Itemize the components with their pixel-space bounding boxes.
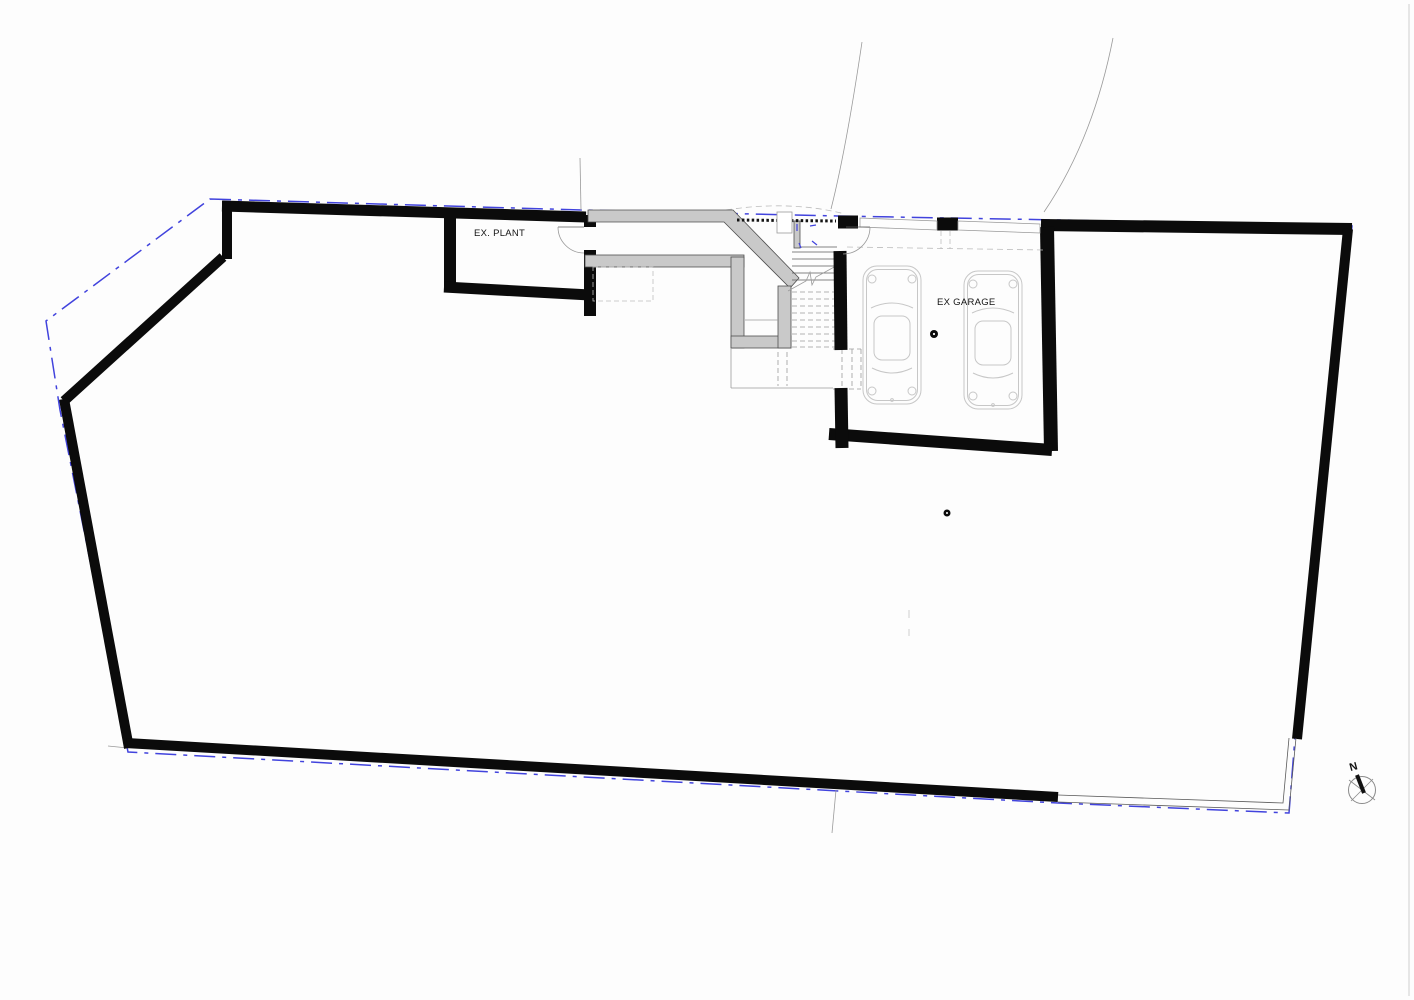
wall-top-right bbox=[1041, 225, 1352, 229]
hidden-rooflight-outline bbox=[593, 267, 653, 301]
under-stair-room bbox=[731, 348, 833, 388]
car-1 bbox=[863, 266, 921, 404]
site-contour-lines bbox=[108, 38, 1113, 833]
north-arrow: N bbox=[1348, 760, 1375, 803]
garage-door-1 bbox=[860, 218, 937, 230]
wall-top-left bbox=[222, 206, 586, 217]
frame-rect bbox=[777, 212, 792, 233]
garage-label: EX GARAGE bbox=[937, 297, 995, 308]
external-walls bbox=[64, 201, 1352, 797]
stair-treads-hidden bbox=[792, 292, 835, 347]
floor-plan-svg: EX. PLANT EX GARAGE N bbox=[0, 0, 1414, 1000]
compass-needle-icon bbox=[1357, 775, 1364, 793]
garage-wall-left-lower bbox=[841, 388, 842, 448]
floor-plan-sheet: EX. PLANT EX GARAGE N bbox=[0, 0, 1414, 1000]
car-2 bbox=[964, 271, 1022, 409]
plant-room-walls bbox=[444, 209, 590, 316]
site-boundary-line bbox=[46, 199, 1352, 813]
stair-treads-solid bbox=[792, 252, 835, 280]
plant-room-door bbox=[558, 227, 584, 253]
wall-diagonal bbox=[64, 257, 223, 401]
wall-left bbox=[64, 399, 129, 748]
existing-gray-walls bbox=[585, 210, 800, 348]
north-label: N bbox=[1348, 760, 1359, 774]
garage-wall-bottom bbox=[829, 434, 1052, 450]
wall-right bbox=[1297, 229, 1348, 739]
plant-room-label: EX. PLANT bbox=[474, 228, 525, 239]
thin-boundary-walls bbox=[1058, 738, 1296, 810]
column-markers bbox=[930, 330, 951, 517]
garage-wall-left-upper bbox=[840, 251, 841, 350]
garage-wall-right bbox=[1047, 227, 1051, 451]
garage-door-head-line bbox=[847, 247, 1045, 250]
garage-door-2 bbox=[958, 221, 1040, 233]
garage-side-door bbox=[843, 227, 870, 254]
stair-hidden-flight bbox=[833, 349, 861, 389]
wall-bottom bbox=[126, 743, 1058, 797]
